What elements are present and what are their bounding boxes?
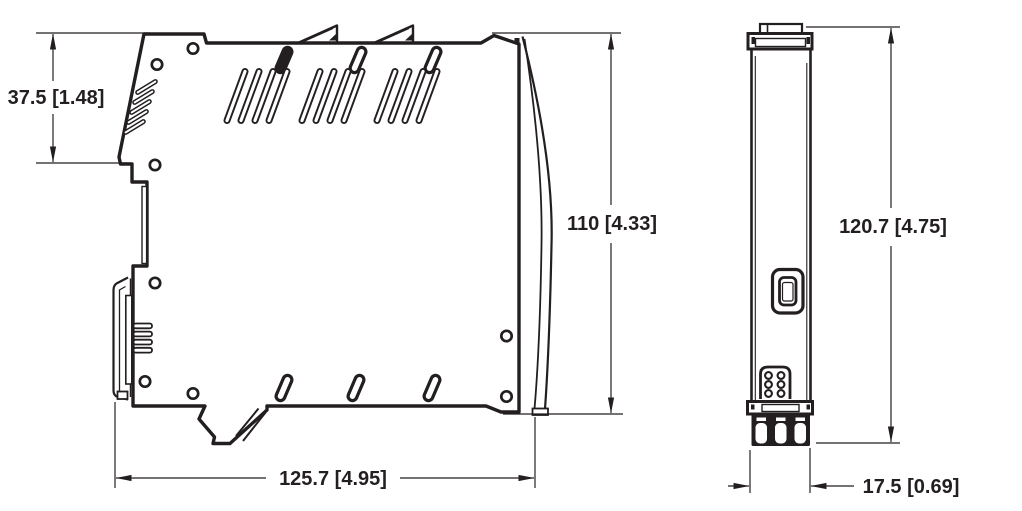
dimension-arrow <box>888 28 894 44</box>
dimension-arrow <box>608 398 614 414</box>
dimension-overall-height: 120.7 [4.75] <box>806 27 947 443</box>
drawing-canvas: 37.5 [1.48] 110 [4.33] 125.7 [4.95] <box>0 0 1022 511</box>
dimension-arrow <box>50 147 56 163</box>
clip-comb-teeth <box>134 324 153 353</box>
bottom-band <box>748 402 813 415</box>
dimension-label: 17.5 [0.69] <box>863 476 960 498</box>
top-clip-tabs <box>299 26 413 43</box>
dimension-arrow <box>734 483 750 489</box>
push-button <box>773 270 804 314</box>
oval-slots-bottom <box>281 380 436 396</box>
dimension-label: 37.5 [1.48] <box>8 87 105 109</box>
dimension-arrow <box>116 475 132 481</box>
dimension-arrow <box>50 34 56 50</box>
dimension-arrow <box>608 34 614 50</box>
dimension-label: 110 [4.33] <box>567 213 657 235</box>
dimension-arrow <box>811 483 827 489</box>
dimension-label: 125.7 [4.95] <box>279 468 387 490</box>
dimension-arrow <box>888 427 894 443</box>
terminal-blocks <box>752 414 811 446</box>
top-band <box>748 34 812 50</box>
vent-slots <box>227 72 437 121</box>
oval-slots-top <box>281 52 437 68</box>
dimension-overall-depth: 125.7 [4.95] <box>115 402 535 490</box>
side-view-outline <box>119 34 519 444</box>
technical-drawing: 37.5 [1.48] 110 [4.33] 125.7 [4.95] <box>0 0 1022 511</box>
dimensions: 37.5 [1.48] 110 [4.33] 125.7 [4.95] <box>8 27 960 498</box>
dimension-arrow <box>519 475 535 481</box>
housing-sides <box>752 49 811 402</box>
rail-slot <box>142 187 147 264</box>
connector-pins <box>761 367 791 399</box>
dimension-label: 120.7 [4.75] <box>839 216 947 238</box>
clip-slider <box>126 296 132 385</box>
corner-mark <box>515 38 520 44</box>
dimension-upper-section-height: 37.5 [1.48] <box>8 33 150 163</box>
dimension-body-height: 110 [4.33] <box>492 33 657 414</box>
side-view <box>114 26 552 444</box>
front-view <box>748 24 813 446</box>
dimension-module-width: 17.5 [0.69] <box>728 448 959 498</box>
